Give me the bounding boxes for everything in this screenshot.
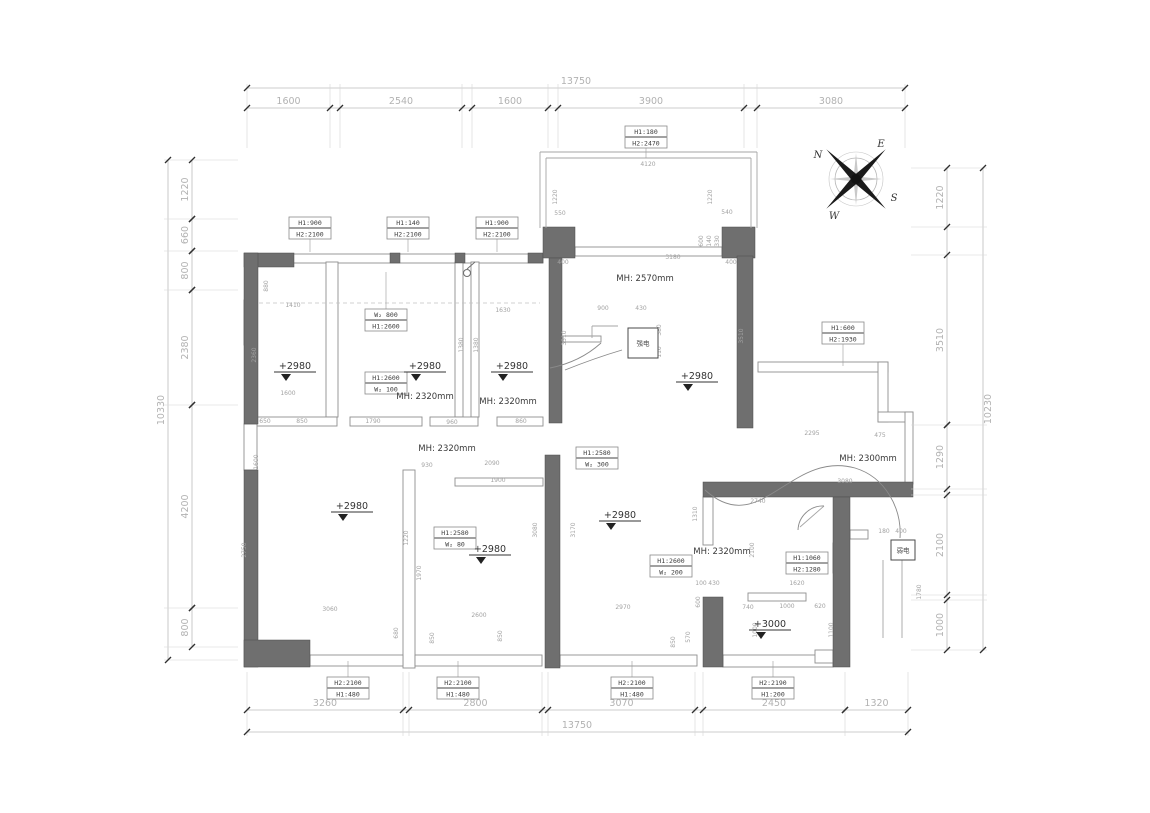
svg-text:860: 860: [515, 418, 527, 425]
svg-text:1000: 1000: [935, 613, 946, 637]
svg-text:3900: 3900: [639, 96, 663, 107]
svg-text:1310: 1310: [692, 506, 699, 521]
opening-size-tag: H1:1060H2:1280: [786, 552, 828, 574]
svg-text:H1:900: H1:900: [485, 219, 509, 227]
svg-text:2295: 2295: [804, 430, 819, 437]
svg-text:3080: 3080: [532, 522, 539, 537]
svg-text:+2980: +2980: [279, 361, 311, 372]
svg-text:3510: 3510: [561, 330, 568, 345]
opening-size-tag: H1:180H2:2470: [625, 126, 667, 158]
svg-text:1970: 1970: [416, 565, 423, 580]
opening-size-tag: H1:900H2:2100: [476, 217, 518, 252]
dimension-chain-top: 1600254016003900308013750: [244, 76, 908, 148]
svg-text:600: 600: [695, 596, 702, 608]
compass-letter-e: E: [876, 139, 885, 150]
svg-text:430: 430: [708, 580, 720, 587]
level-marker: +2980: [469, 544, 511, 564]
svg-text:W₂ 300: W₂ 300: [585, 461, 609, 469]
svg-text:100: 100: [695, 580, 707, 587]
svg-text:4200: 4200: [180, 494, 191, 518]
svg-text:MH: 2300mm: MH: 2300mm: [839, 454, 896, 464]
svg-text:MH: 2320mm: MH: 2320mm: [396, 392, 453, 402]
svg-text:强电: 强电: [637, 339, 651, 348]
svg-text:H1:140: H1:140: [396, 219, 420, 227]
svg-text:弱电: 弱电: [897, 546, 911, 555]
svg-text:H1:2580: H1:2580: [583, 449, 610, 457]
svg-text:620: 620: [814, 603, 826, 610]
svg-text:1780: 1780: [916, 584, 923, 599]
opening-size-tag: H1:900H2:2100: [289, 217, 331, 252]
svg-text:1290: 1290: [935, 445, 946, 469]
svg-text:10330: 10330: [156, 395, 167, 425]
svg-text:2100: 2100: [935, 533, 946, 557]
floor-plan-svg: 1600254016003900308013750326028003070245…: [0, 0, 1150, 813]
svg-text:MH: 2320mm: MH: 2320mm: [693, 547, 750, 557]
svg-text:H1:2600: H1:2600: [372, 323, 399, 331]
svg-text:3070: 3070: [609, 698, 633, 709]
svg-text:3510: 3510: [935, 328, 946, 352]
level-marker: +2980: [331, 501, 373, 521]
compass-rose: NESW: [813, 139, 898, 222]
svg-text:13750: 13750: [561, 76, 591, 87]
svg-text:1620: 1620: [789, 580, 804, 587]
svg-text:2970: 2970: [615, 604, 630, 611]
svg-text:550: 550: [554, 210, 566, 217]
svg-text:H2:2190: H2:2190: [759, 679, 786, 687]
svg-text:+2980: +2980: [336, 501, 368, 512]
svg-text:1600: 1600: [498, 96, 522, 107]
svg-text:600: 600: [698, 235, 705, 247]
svg-text:H2:1930: H2:1930: [829, 336, 856, 344]
svg-text:2450: 2450: [762, 698, 786, 709]
svg-text:H2:2100: H2:2100: [618, 679, 645, 687]
svg-text:1220: 1220: [707, 189, 714, 204]
svg-text:1100: 1100: [828, 622, 835, 637]
compass-letter-n: N: [813, 150, 824, 161]
svg-text:H2:2100: H2:2100: [444, 679, 471, 687]
opening-size-tag: H1:2580W₂ 300: [576, 447, 618, 469]
svg-text:540: 540: [721, 209, 733, 216]
svg-text:H1:600: H1:600: [831, 324, 855, 332]
svg-text:H2:2100: H2:2100: [334, 679, 361, 687]
svg-text:1600: 1600: [253, 454, 260, 469]
svg-text:H1:480: H1:480: [620, 691, 644, 699]
opening-size-tag: H2:2100H1:480: [327, 661, 369, 699]
svg-text:1220: 1220: [180, 177, 191, 201]
svg-text:660: 660: [180, 226, 191, 244]
svg-text:1900: 1900: [490, 477, 505, 484]
level-marker: +2980: [491, 361, 533, 381]
opening-size-tag: W₂ 800H1:2600: [365, 272, 407, 331]
svg-text:330: 330: [714, 235, 721, 247]
svg-text:800: 800: [180, 261, 191, 279]
svg-text:H2:2470: H2:2470: [632, 140, 659, 148]
level-marker: +2980: [676, 371, 718, 391]
svg-text:H1:900: H1:900: [298, 219, 322, 227]
svg-text:MH: 2320mm: MH: 2320mm: [418, 444, 475, 454]
svg-text:W₂ 80: W₂ 80: [445, 541, 465, 549]
svg-text:H2:2100: H2:2100: [394, 231, 421, 239]
svg-text:H2:2100: H2:2100: [296, 231, 323, 239]
svg-text:1320: 1320: [864, 698, 888, 709]
svg-text:1410: 1410: [285, 302, 300, 309]
svg-text:850: 850: [670, 636, 677, 648]
svg-text:1630: 1630: [495, 307, 510, 314]
svg-text:+2980: +2980: [604, 510, 636, 521]
svg-text:430: 430: [635, 305, 647, 312]
svg-text:740: 740: [742, 604, 754, 611]
svg-text:H1:480: H1:480: [446, 691, 470, 699]
svg-text:3080: 3080: [837, 478, 852, 485]
svg-text:MH: 2320mm: MH: 2320mm: [479, 397, 536, 407]
svg-text:W₂ 800: W₂ 800: [374, 311, 398, 319]
svg-text:2740: 2740: [750, 498, 765, 505]
svg-text:1220: 1220: [935, 185, 946, 209]
svg-text:3170: 3170: [570, 522, 577, 537]
svg-text:+2980: +2980: [409, 361, 441, 372]
opening-size-tag: H1:600H2:1930: [822, 322, 864, 366]
svg-text:H1:2600: H1:2600: [657, 557, 684, 565]
compass-letter-w: W: [829, 211, 840, 222]
dimension-chain-right: 1220351012902100100010230: [911, 165, 994, 653]
svg-text:930: 930: [421, 462, 433, 469]
svg-text:850: 850: [296, 418, 308, 425]
svg-text:880: 880: [263, 280, 270, 292]
opening-size-tag: H2:2100H1:480: [437, 661, 479, 699]
svg-text:+2980: +2980: [474, 544, 506, 555]
svg-text:3080: 3080: [819, 96, 843, 107]
svg-text:1380: 1380: [458, 337, 465, 352]
svg-text:800: 800: [180, 618, 191, 636]
equipment-box: 弱电: [891, 540, 915, 560]
svg-text:4120: 4120: [640, 161, 655, 168]
svg-text:3510: 3510: [738, 328, 745, 343]
svg-text:+3000: +3000: [754, 619, 786, 630]
svg-text:400: 400: [557, 259, 569, 266]
svg-text:850: 850: [429, 632, 436, 644]
svg-text:1790: 1790: [365, 418, 380, 425]
svg-text:400: 400: [895, 528, 907, 535]
level-marker: +2980: [404, 361, 446, 381]
svg-text:W₂ 200: W₂ 200: [659, 569, 683, 577]
svg-text:570: 570: [685, 631, 692, 643]
opening-size-tag: H1:2600W₂ 100: [365, 372, 407, 394]
svg-text:2750: 2750: [241, 542, 248, 557]
svg-text:3260: 3260: [313, 698, 337, 709]
svg-text:1600: 1600: [276, 96, 300, 107]
svg-text:+2980: +2980: [681, 371, 713, 382]
compass-letter-s: S: [891, 193, 898, 204]
opening-size-tag: H1:2580W₂ 80: [434, 527, 476, 549]
floorplan-canvas: 1600254016003900308013750326028003070245…: [0, 0, 1150, 813]
svg-text:3180: 3180: [665, 254, 680, 261]
svg-text:H1:2600: H1:2600: [372, 374, 399, 382]
svg-text:1600: 1600: [280, 390, 295, 397]
svg-text:13750: 13750: [562, 720, 592, 731]
svg-text:H2:2100: H2:2100: [483, 231, 510, 239]
svg-text:180: 180: [878, 528, 890, 535]
svg-text:1380: 1380: [473, 337, 480, 352]
svg-text:2800: 2800: [463, 698, 487, 709]
opening-size-tags: H1:180H2:2470H1:900H2:2100H1:140H2:2100H…: [289, 126, 864, 699]
svg-text:2600: 2600: [471, 612, 486, 619]
level-marker: +2980: [274, 361, 316, 381]
svg-text:900: 900: [597, 305, 609, 312]
svg-text:H1:200: H1:200: [761, 691, 785, 699]
svg-text:H1:1060: H1:1060: [793, 554, 820, 562]
level-marker: +2980: [599, 510, 641, 530]
svg-text:10230: 10230: [983, 394, 994, 424]
opening-size-tag: H1:2600W₂ 200: [650, 555, 692, 577]
equipment-box: 强电: [628, 328, 658, 358]
svg-text:H1:480: H1:480: [336, 691, 360, 699]
svg-text:H1:2580: H1:2580: [441, 529, 468, 537]
svg-text:H2:1280: H2:1280: [793, 566, 820, 574]
svg-text:2090: 2090: [484, 460, 499, 467]
svg-text:2360: 2360: [251, 347, 258, 362]
svg-text:2540: 2540: [389, 96, 413, 107]
svg-text:+2980: +2980: [496, 361, 528, 372]
svg-text:2380: 2380: [180, 335, 191, 359]
interior-dimensions: 4120122012205505403180400400600140330900…: [241, 161, 923, 648]
svg-text:H1:180: H1:180: [634, 128, 658, 136]
svg-text:3060: 3060: [322, 606, 337, 613]
svg-text:850: 850: [497, 630, 504, 642]
svg-text:680: 680: [393, 627, 400, 639]
svg-text:MH: 2570mm: MH: 2570mm: [616, 274, 673, 284]
opening-size-tag: H1:140H2:2100: [387, 217, 429, 252]
svg-text:W₂ 100: W₂ 100: [374, 386, 398, 394]
svg-text:140: 140: [706, 235, 713, 247]
opening-size-tag: H2:2100H1:480: [611, 661, 653, 699]
svg-text:400: 400: [725, 259, 737, 266]
svg-text:475: 475: [874, 432, 886, 439]
svg-text:650: 650: [259, 418, 271, 425]
dimension-chain-left: 12206608002380420080010330: [156, 157, 238, 663]
svg-text:1220: 1220: [403, 530, 410, 545]
svg-text:960: 960: [446, 419, 458, 426]
svg-text:1000: 1000: [779, 603, 794, 610]
svg-text:1220: 1220: [552, 189, 559, 204]
